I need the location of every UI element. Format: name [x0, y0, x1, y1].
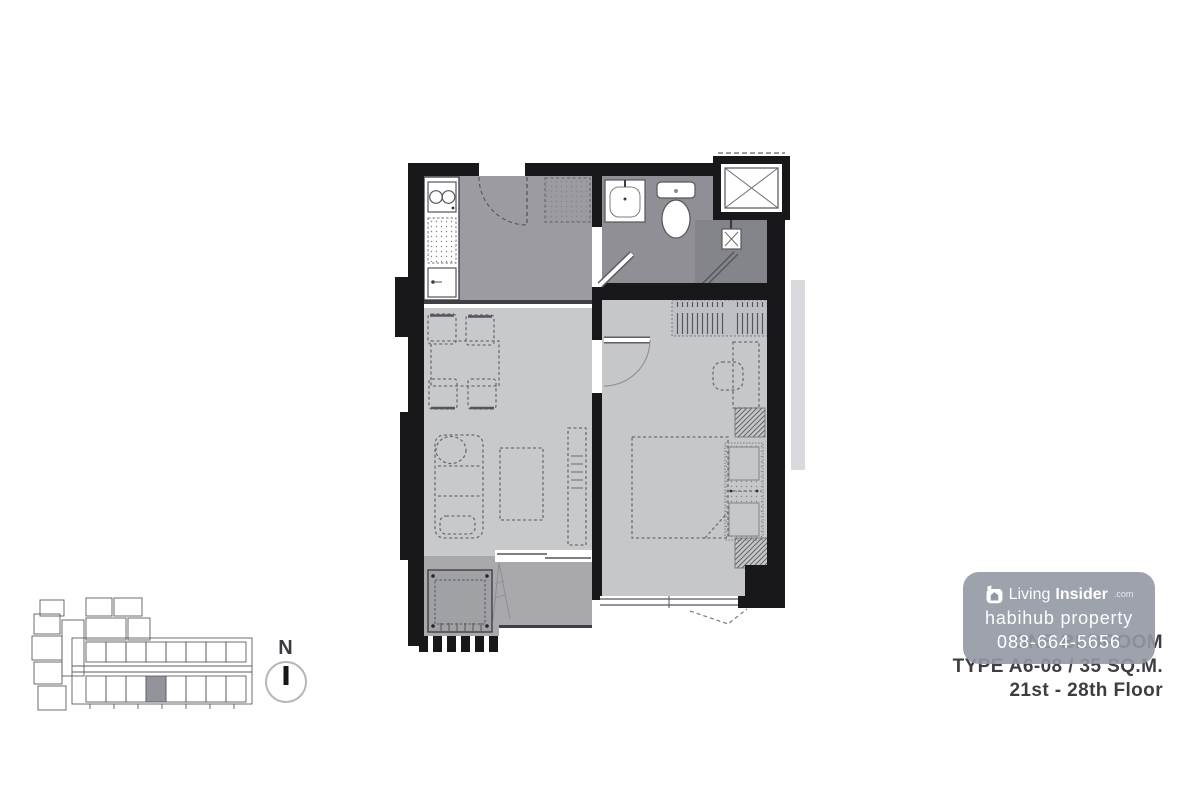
- watermark-badge: LivingInsider.com habihub property 088-6…: [963, 572, 1155, 664]
- hall-living-threshold: [424, 300, 592, 308]
- balcony-edge: [499, 625, 592, 628]
- washing-machine-icon: [428, 570, 492, 632]
- bedroom-window: [600, 596, 747, 624]
- ac-ledge: [713, 153, 790, 220]
- brand-word-insider: Insider: [1055, 585, 1107, 605]
- shoe-cabinet: [545, 178, 590, 222]
- unit-floorplan: [395, 150, 807, 662]
- under-counter-unit: [428, 218, 456, 263]
- building-key-plan: [28, 592, 260, 724]
- north-label: N: [262, 638, 310, 658]
- compass-circle: [265, 661, 307, 703]
- north-compass: N: [262, 638, 310, 703]
- floorplan-sheet: N LivingInsider.com habihub property 088…: [0, 0, 1200, 800]
- unit-floor-range: 21st - 28th Floor: [953, 679, 1163, 703]
- vanity-sink-icon: [605, 180, 645, 222]
- plant-icon: [436, 437, 466, 464]
- brand-word-living: Living: [1009, 585, 1051, 605]
- watermark-brand: LivingInsider.com: [985, 584, 1134, 606]
- wardrobe: [672, 300, 770, 336]
- watermark-phone: 088-664-5656: [997, 631, 1121, 653]
- key-plan-highlight-unit: [146, 676, 166, 702]
- brand-tld: .com: [1114, 584, 1134, 606]
- kitchen-counter: [424, 177, 459, 300]
- north-needle-icon: [284, 666, 289, 685]
- watermark-agency: habihub property: [985, 607, 1133, 630]
- living-insider-logo-icon: [985, 585, 1004, 604]
